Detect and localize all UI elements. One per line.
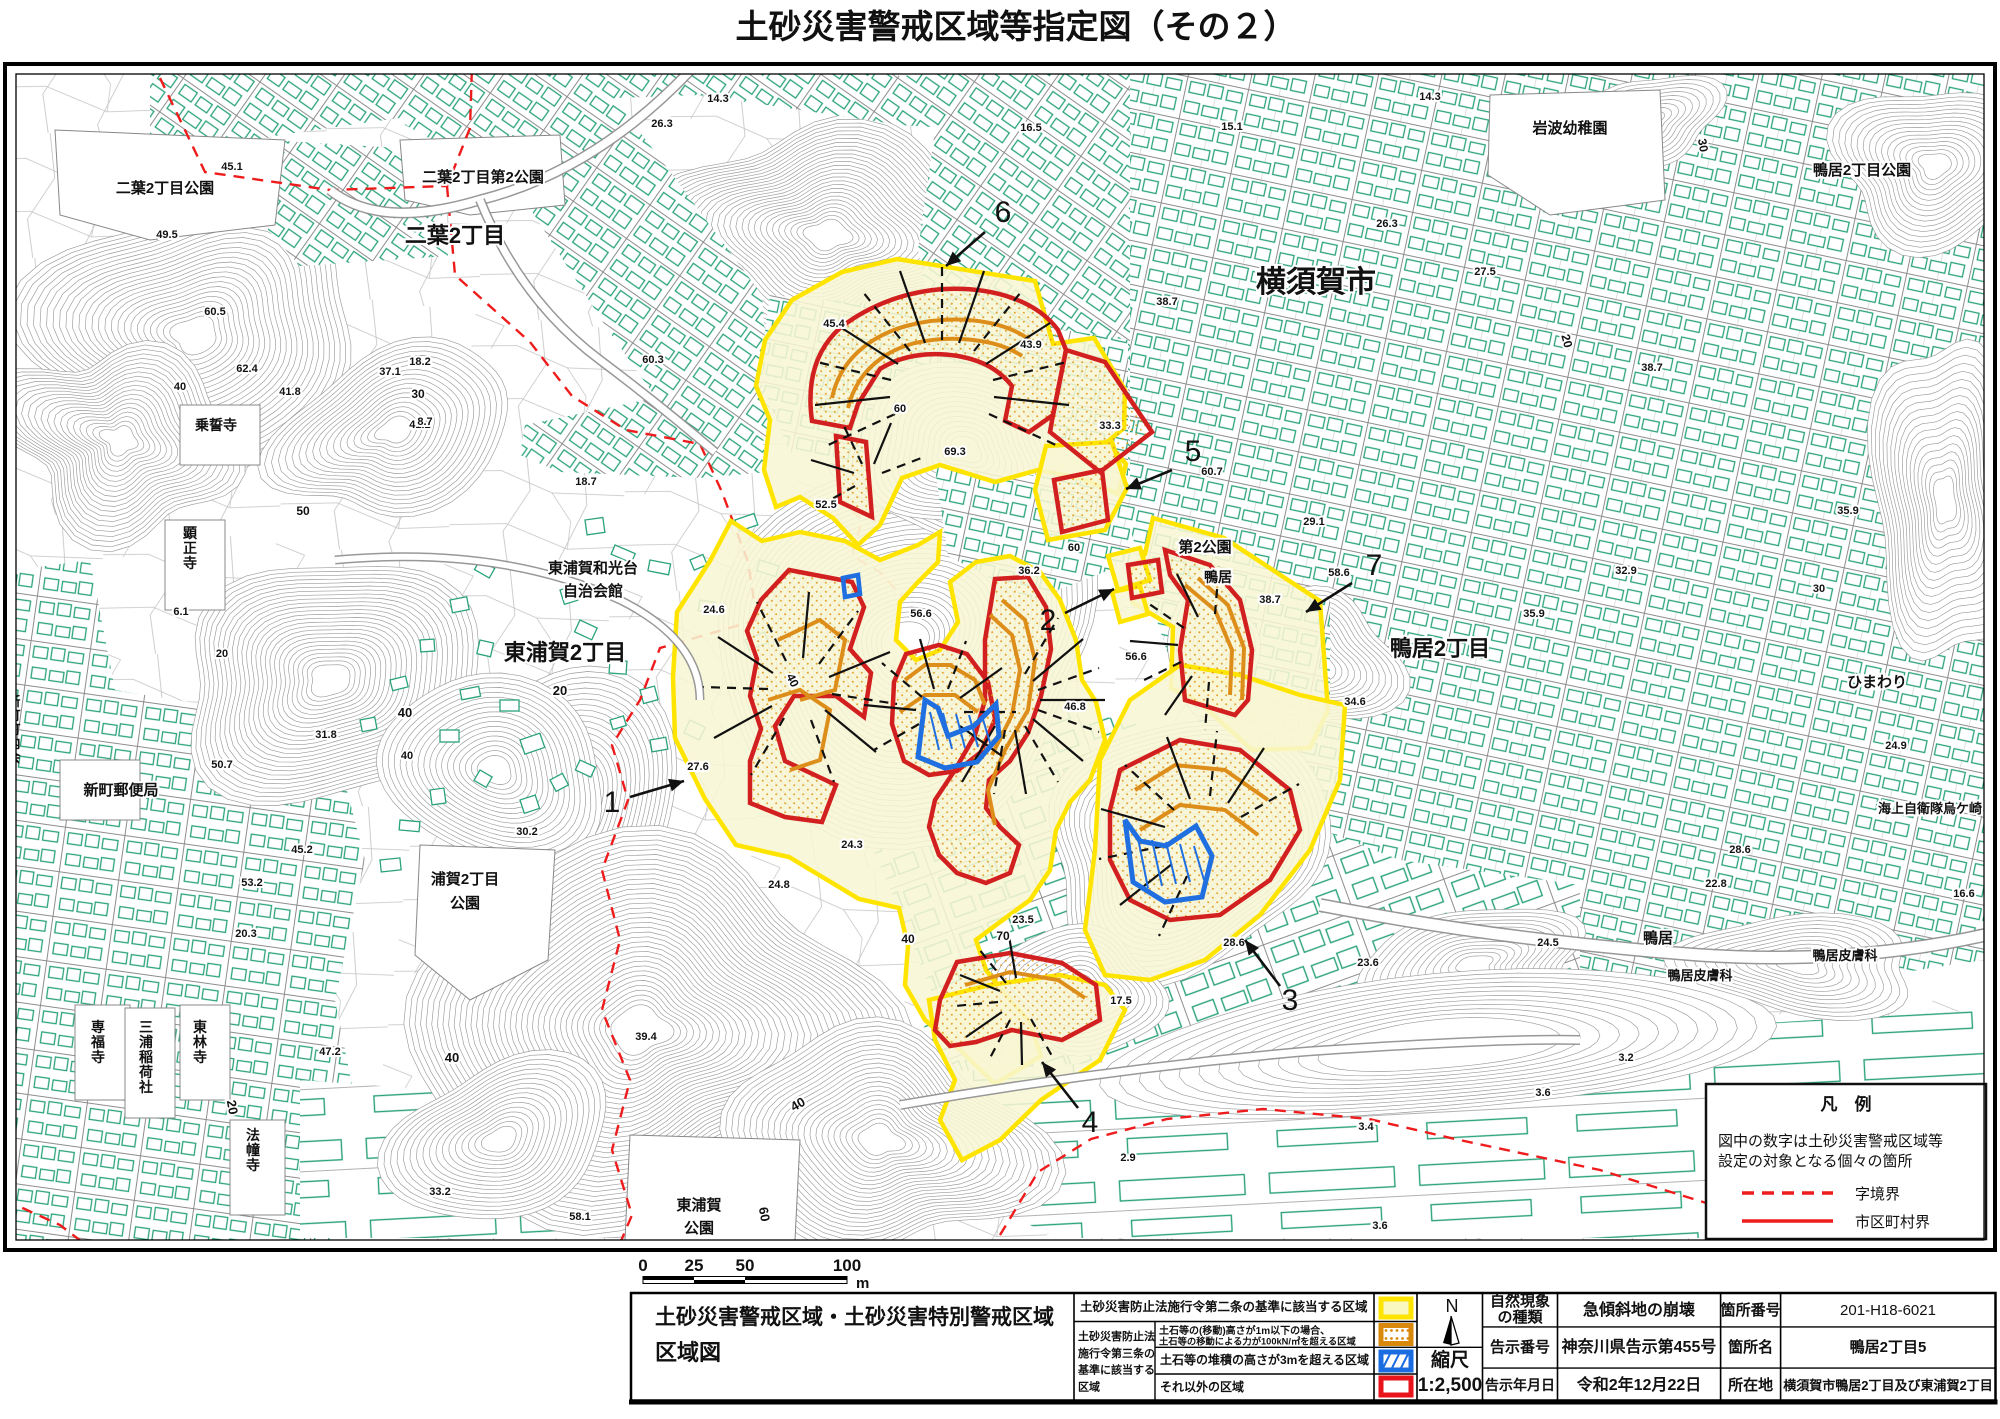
svg-text:22.8: 22.8 xyxy=(1705,878,1726,890)
svg-text:自治会館: 自治会館 xyxy=(563,582,623,600)
svg-text:3.4: 3.4 xyxy=(1358,1121,1374,1133)
svg-text:45.4: 45.4 xyxy=(823,318,845,330)
svg-text:稲: 稲 xyxy=(139,1049,153,1065)
svg-text:自然現象: 自然現象 xyxy=(1490,1292,1550,1310)
svg-text:寺: 寺 xyxy=(183,555,197,571)
svg-text:28.6: 28.6 xyxy=(1223,937,1244,949)
svg-text:幢: 幢 xyxy=(246,1142,260,1158)
svg-text:58.6: 58.6 xyxy=(1328,567,1349,579)
svg-text:寺: 寺 xyxy=(91,1049,105,1065)
svg-text:二葉2丁目第2公園: 二葉2丁目第2公園 xyxy=(422,168,544,186)
svg-text:40: 40 xyxy=(901,932,915,946)
svg-text:鴨居: 鴨居 xyxy=(1643,929,1673,947)
svg-text:100: 100 xyxy=(833,1256,861,1275)
svg-text:設定の対象となる個々の箇所: 設定の対象となる個々の箇所 xyxy=(1718,1153,1913,1170)
svg-text:41.8: 41.8 xyxy=(279,386,300,398)
svg-text:1:2,500: 1:2,500 xyxy=(1418,1375,1482,1396)
svg-text:52.5: 52.5 xyxy=(815,499,836,511)
svg-text:39.4: 39.4 xyxy=(635,1031,657,1043)
svg-text:令和2年12月22日: 令和2年12月22日 xyxy=(1576,1375,1702,1394)
svg-text:46.8: 46.8 xyxy=(1064,701,1085,713)
svg-text:38.7: 38.7 xyxy=(1259,594,1280,606)
svg-text:35.9: 35.9 xyxy=(1523,608,1544,620)
svg-text:所在地: 所在地 xyxy=(1728,1376,1773,1394)
svg-text:43.9: 43.9 xyxy=(1020,339,1041,351)
svg-text:14.3: 14.3 xyxy=(1419,91,1440,103)
svg-text:50: 50 xyxy=(736,1256,755,1275)
svg-text:60.7: 60.7 xyxy=(1201,466,1222,478)
svg-text:3: 3 xyxy=(1282,984,1299,1017)
svg-text:25: 25 xyxy=(685,1256,704,1275)
svg-text:69.3: 69.3 xyxy=(944,446,965,458)
svg-text:正: 正 xyxy=(183,540,197,556)
svg-text:N: N xyxy=(1446,1296,1459,1316)
svg-text:20: 20 xyxy=(553,683,567,698)
svg-text:30: 30 xyxy=(1813,583,1825,595)
svg-text:18.7: 18.7 xyxy=(575,476,596,488)
svg-text:60: 60 xyxy=(894,403,906,415)
svg-text:鴨居2丁目5: 鴨居2丁目5 xyxy=(1850,1338,1927,1356)
svg-text:2.9: 2.9 xyxy=(1120,1152,1135,1164)
svg-text:土砂災害警戒区域・土砂災害特別警戒区域: 土砂災害警戒区域・土砂災害特別警戒区域 xyxy=(655,1305,1054,1329)
svg-text:47.2: 47.2 xyxy=(319,1046,340,1058)
svg-text:告示年月日: 告示年月日 xyxy=(1485,1377,1555,1393)
svg-text:新町郵便局: 新町郵便局 xyxy=(83,781,158,799)
svg-text:m: m xyxy=(856,1275,869,1292)
svg-text:24.5: 24.5 xyxy=(1537,937,1558,949)
svg-text:寺: 寺 xyxy=(193,1049,207,1065)
svg-text:5: 5 xyxy=(1185,435,1202,468)
svg-text:24.8: 24.8 xyxy=(768,879,789,891)
svg-text:3.6: 3.6 xyxy=(1372,1220,1387,1232)
svg-text:27.5: 27.5 xyxy=(1474,266,1495,278)
svg-text:3.2: 3.2 xyxy=(1618,1052,1633,1064)
svg-text:28.6: 28.6 xyxy=(1729,844,1750,856)
svg-text:急傾斜地の崩壊: 急傾斜地の崩壊 xyxy=(1583,1300,1696,1319)
svg-text:土砂災害防止法施行令第二条の基準に該当する区域: 土砂災害防止法施行令第二条の基準に該当する区域 xyxy=(1080,1299,1368,1314)
svg-text:土石等の(移動)高さが1m以下の場合、: 土石等の(移動)高さが1m以下の場合、 xyxy=(1159,1324,1330,1337)
svg-text:第2公園: 第2公園 xyxy=(1178,538,1231,556)
svg-text:荷: 荷 xyxy=(138,1064,153,1080)
svg-text:ひまわり: ひまわり xyxy=(1847,674,1907,691)
svg-text:基準に該当する: 基準に該当する xyxy=(1077,1363,1155,1377)
svg-text:土砂災害防止法: 土砂災害防止法 xyxy=(1078,1329,1155,1343)
svg-text:縮尺: 縮尺 xyxy=(1431,1348,1469,1371)
svg-text:30: 30 xyxy=(411,387,425,401)
svg-text:顕: 顕 xyxy=(183,525,198,541)
svg-text:土砂災害警戒区域等指定図（その２）: 土砂災害警戒区域等指定図（その２） xyxy=(736,8,1297,45)
svg-text:40: 40 xyxy=(174,381,186,393)
svg-text:社: 社 xyxy=(138,1079,153,1095)
svg-text:38.7: 38.7 xyxy=(1641,362,1662,374)
svg-text:49.5: 49.5 xyxy=(156,229,177,241)
svg-text:33.3: 33.3 xyxy=(1099,420,1120,432)
svg-text:区域図: 区域図 xyxy=(655,1340,721,1365)
svg-text:32.9: 32.9 xyxy=(1615,565,1636,577)
svg-text:20: 20 xyxy=(216,648,228,660)
svg-text:横須賀市鴨居2丁目及び東浦賀2丁目: 横須賀市鴨居2丁目及び東浦賀2丁目 xyxy=(1783,1378,1992,1393)
svg-text:56.6: 56.6 xyxy=(1125,651,1146,663)
svg-text:201-H18-6021: 201-H18-6021 xyxy=(1840,1302,1936,1319)
svg-text:専: 専 xyxy=(91,1019,105,1035)
svg-text:告示番号: 告示番号 xyxy=(1490,1338,1550,1356)
svg-text:二葉2丁目公園: 二葉2丁目公園 xyxy=(116,179,214,197)
svg-text:40: 40 xyxy=(401,750,413,762)
svg-text:土石等の移動による力が100kN/㎡を超える区域: 土石等の移動による力が100kN/㎡を超える区域 xyxy=(1159,1336,1356,1347)
svg-text:26.3: 26.3 xyxy=(651,118,672,130)
svg-text:浦: 浦 xyxy=(139,1034,153,1050)
svg-text:23.6: 23.6 xyxy=(1357,957,1378,969)
svg-text:海上自衛隊烏ケ崎: 海上自衛隊烏ケ崎 xyxy=(1878,801,1982,816)
svg-text:20: 20 xyxy=(224,1099,241,1116)
svg-text:24.6: 24.6 xyxy=(703,604,724,616)
svg-text:27.6: 27.6 xyxy=(687,761,708,773)
svg-text:15.1: 15.1 xyxy=(1221,121,1242,133)
svg-text:区域: 区域 xyxy=(1078,1379,1100,1393)
svg-text:土石等の堆積の高さが3mを超える区域: 土石等の堆積の高さが3mを超える区域 xyxy=(1160,1352,1369,1367)
svg-text:34.6: 34.6 xyxy=(1344,696,1365,708)
svg-text:36.2: 36.2 xyxy=(1018,565,1039,577)
svg-text:東浦賀: 東浦賀 xyxy=(676,1196,721,1214)
svg-text:29.1: 29.1 xyxy=(1303,516,1324,528)
svg-text:法: 法 xyxy=(246,1127,260,1143)
svg-text:横須賀市: 横須賀市 xyxy=(1256,265,1376,299)
svg-text:38.7: 38.7 xyxy=(1156,296,1177,308)
svg-text:鴨居2丁目: 鴨居2丁目 xyxy=(1390,636,1490,661)
svg-text:公園: 公園 xyxy=(450,895,480,912)
svg-text:58.1: 58.1 xyxy=(569,1211,590,1223)
svg-text:東浦賀和光台: 東浦賀和光台 xyxy=(548,559,638,577)
svg-text:31.8: 31.8 xyxy=(315,729,336,741)
svg-text:林: 林 xyxy=(193,1034,207,1050)
svg-text:浦賀2丁目: 浦賀2丁目 xyxy=(431,870,499,888)
svg-text:6.1: 6.1 xyxy=(173,606,188,618)
svg-text:凡 例: 凡 例 xyxy=(1821,1094,1872,1114)
svg-text:二葉2丁目: 二葉2丁目 xyxy=(405,223,505,248)
svg-text:24.9: 24.9 xyxy=(1885,740,1906,752)
svg-text:1: 1 xyxy=(604,786,621,819)
svg-text:33.2: 33.2 xyxy=(429,1186,450,1198)
svg-text:40: 40 xyxy=(445,1050,459,1065)
svg-text:18.2: 18.2 xyxy=(409,356,430,368)
svg-text:50.7: 50.7 xyxy=(211,759,232,771)
svg-text:箇所番号: 箇所番号 xyxy=(1720,1301,1781,1319)
svg-text:56.6: 56.6 xyxy=(910,608,931,620)
svg-text:公園: 公園 xyxy=(684,1220,714,1237)
svg-text:23.5: 23.5 xyxy=(1012,914,1033,926)
svg-text:60.5: 60.5 xyxy=(204,306,225,318)
svg-text:鴨居: 鴨居 xyxy=(1204,569,1232,585)
svg-text:2: 2 xyxy=(1040,604,1057,637)
svg-text:の種類: の種類 xyxy=(1497,1309,1543,1326)
svg-text:70: 70 xyxy=(996,929,1010,943)
svg-text:それ以外の区域: それ以外の区域 xyxy=(1160,1379,1244,1394)
svg-text:三: 三 xyxy=(139,1019,153,1035)
svg-text:施行令第三条の: 施行令第三条の xyxy=(1078,1346,1155,1360)
svg-text:鴨居皮膚科: 鴨居皮膚科 xyxy=(1667,968,1732,983)
svg-text:17.5: 17.5 xyxy=(1110,995,1131,1007)
svg-text:東: 東 xyxy=(193,1019,207,1035)
svg-text:箇所名: 箇所名 xyxy=(1727,1338,1773,1356)
svg-text:60: 60 xyxy=(1068,542,1080,554)
svg-text:6: 6 xyxy=(995,196,1012,229)
svg-text:40: 40 xyxy=(398,705,412,720)
svg-text:26.3: 26.3 xyxy=(1376,218,1397,230)
svg-text:53.2: 53.2 xyxy=(241,877,262,889)
svg-text:30: 30 xyxy=(1695,138,1711,154)
svg-text:神奈川県告示第455号: 神奈川県告示第455号 xyxy=(1562,1337,1717,1356)
svg-text:字境界: 字境界 xyxy=(1855,1185,1900,1203)
svg-text:60: 60 xyxy=(756,1206,773,1223)
svg-text:東浦賀2丁目: 東浦賀2丁目 xyxy=(504,640,626,665)
svg-text:35.9: 35.9 xyxy=(1837,505,1858,517)
svg-text:7: 7 xyxy=(1366,549,1383,582)
svg-text:図中の数字は土砂災害警戒区域等: 図中の数字は土砂災害警戒区域等 xyxy=(1718,1132,1943,1150)
svg-text:福: 福 xyxy=(90,1034,105,1050)
svg-text:45.1: 45.1 xyxy=(221,161,242,173)
svg-text:20.3: 20.3 xyxy=(235,928,256,940)
svg-text:鴨居皮膚科: 鴨居皮膚科 xyxy=(1812,948,1877,963)
svg-text:16.6: 16.6 xyxy=(1953,888,1974,900)
svg-text:16.5: 16.5 xyxy=(1020,122,1041,134)
svg-text:市区町村界: 市区町村界 xyxy=(1855,1214,1930,1231)
svg-text:鴨居2丁目公園: 鴨居2丁目公園 xyxy=(1813,161,1911,179)
svg-text:14.3: 14.3 xyxy=(707,93,728,105)
svg-text:37.1: 37.1 xyxy=(379,366,400,378)
svg-text:0: 0 xyxy=(638,1256,647,1275)
svg-text:45.2: 45.2 xyxy=(291,844,312,856)
svg-text:50: 50 xyxy=(296,504,310,518)
svg-text:24.3: 24.3 xyxy=(841,839,862,851)
svg-text:30.2: 30.2 xyxy=(516,826,537,838)
svg-text:60.3: 60.3 xyxy=(642,354,663,366)
svg-text:3.6: 3.6 xyxy=(1535,1087,1550,1099)
svg-text:62.4: 62.4 xyxy=(236,363,258,375)
svg-text:岩波幼稚園: 岩波幼稚園 xyxy=(1531,119,1607,137)
svg-text:寺: 寺 xyxy=(246,1157,260,1173)
svg-text:8.7: 8.7 xyxy=(417,416,432,428)
svg-text:4: 4 xyxy=(1082,1106,1099,1139)
svg-text:乗誓寺: 乗誓寺 xyxy=(194,417,237,433)
